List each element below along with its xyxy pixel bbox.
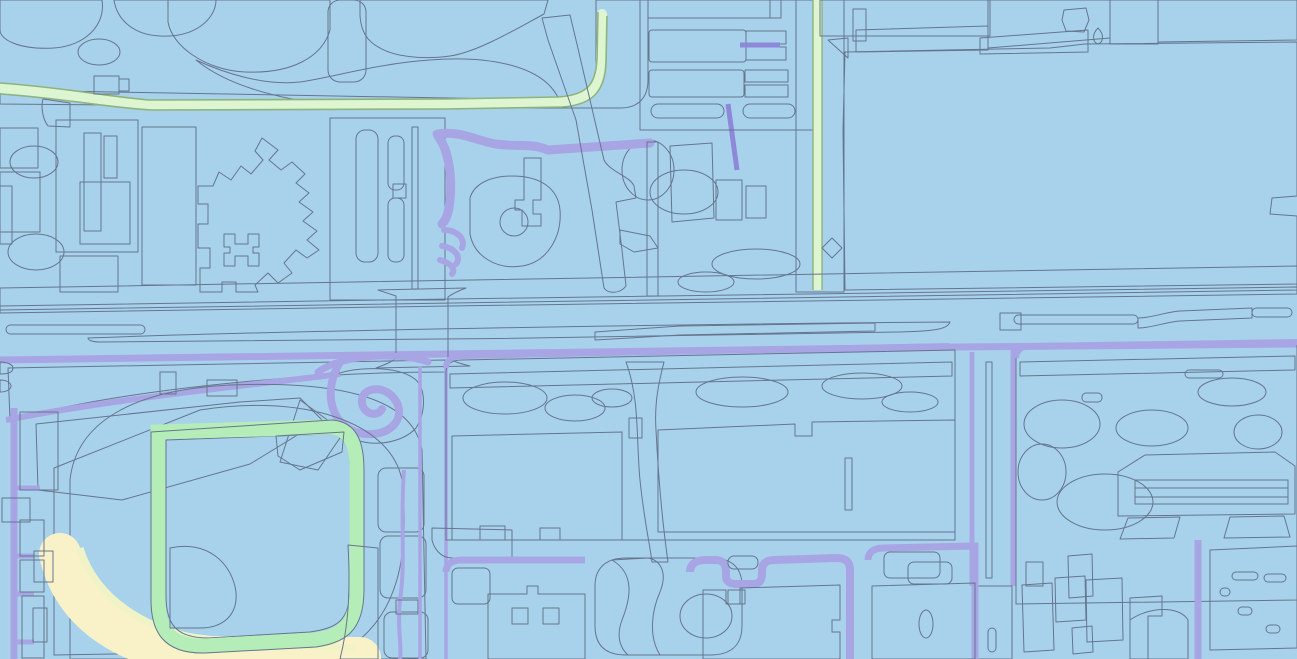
pink-avenue-west bbox=[420, 362, 446, 659]
warehouse-west bbox=[452, 432, 622, 540]
map-canvas[interactable] bbox=[0, 0, 1297, 659]
cream-building-a bbox=[488, 586, 585, 659]
northeast-district bbox=[820, 0, 1297, 290]
large-pink-parcel bbox=[843, 42, 1297, 290]
cream-building-b bbox=[703, 585, 840, 659]
warehouse-east bbox=[658, 420, 955, 532]
green-lot-southeast bbox=[1210, 546, 1297, 650]
stadium-district bbox=[0, 356, 445, 659]
map-viewport[interactable] bbox=[0, 0, 1297, 659]
